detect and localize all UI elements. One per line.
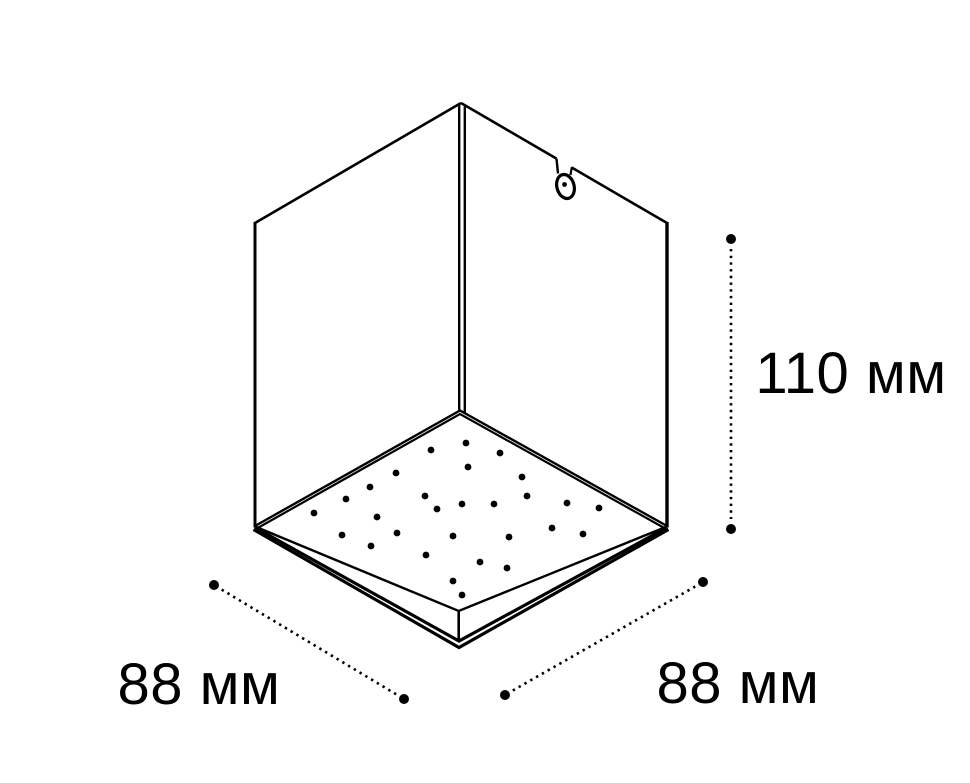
mounting-eyelet: [554, 159, 577, 201]
led-dot: [477, 559, 484, 566]
dimension-width-left: 88 мм: [118, 580, 409, 717]
led-dot: [339, 532, 346, 539]
led-dot: [393, 470, 400, 477]
eyelet-hole-icon: [562, 182, 567, 187]
led-dot: [596, 505, 603, 512]
led-dot: [463, 440, 470, 447]
dimension-label-width-right: 88 мм: [657, 651, 820, 716]
cube-top-right-edge-b: [572, 167, 668, 223]
led-dot: [506, 534, 513, 541]
cube-top-left-edge: [255, 103, 461, 223]
led-dot: [434, 506, 441, 513]
dimension-height: 110 мм: [726, 234, 947, 534]
led-dot: [423, 552, 430, 559]
cube-top-right-edge-a: [461, 103, 557, 159]
dimension-endpoint-dot: [399, 694, 409, 704]
led-dot: [374, 514, 381, 521]
led-panel-dots: [311, 440, 603, 599]
cube-outline: [255, 103, 667, 528]
luminaire-dimension-diagram: 88 мм 88 мм 110 мм: [0, 0, 970, 783]
dimension-endpoint-dot: [726, 234, 736, 244]
led-dot: [367, 484, 374, 491]
trim-ring-edge-inner: [255, 528, 667, 642]
led-dot: [459, 501, 466, 508]
dimension-label-height: 110 мм: [755, 341, 946, 406]
dimension-endpoint-dot: [698, 577, 708, 587]
led-dot: [428, 447, 435, 454]
led-dot: [497, 450, 504, 457]
led-dot: [311, 510, 318, 517]
led-dot: [459, 592, 466, 599]
led-dot: [394, 530, 401, 537]
led-dot: [504, 565, 511, 572]
led-dot: [580, 531, 587, 538]
led-dot: [422, 493, 429, 500]
led-dot: [491, 501, 498, 508]
led-dot: [343, 496, 350, 503]
dimension-endpoint-dot: [500, 690, 510, 700]
dimension-endpoint-dot: [726, 524, 736, 534]
led-dot: [524, 493, 531, 500]
eyelet-notch-right: [571, 167, 572, 175]
led-dot: [519, 474, 526, 481]
led-dot: [564, 500, 571, 507]
led-dot: [465, 464, 472, 471]
drawing-page: 88 мм 88 мм 110 мм: [0, 0, 970, 783]
led-panel-boundary: [255, 527, 667, 612]
led-dot: [450, 533, 457, 540]
led-dot: [549, 525, 556, 532]
eyelet-notch-left: [557, 159, 559, 174]
led-dot: [368, 543, 375, 550]
bottom-far-edge-outer: [255, 411, 667, 527]
dimension-label-width-left: 88 мм: [118, 652, 281, 717]
trim-ring-edge-outer: [254, 530, 669, 648]
led-dot: [450, 578, 457, 585]
dimension-endpoint-dot: [209, 580, 219, 590]
bottom-assembly: [254, 411, 669, 648]
